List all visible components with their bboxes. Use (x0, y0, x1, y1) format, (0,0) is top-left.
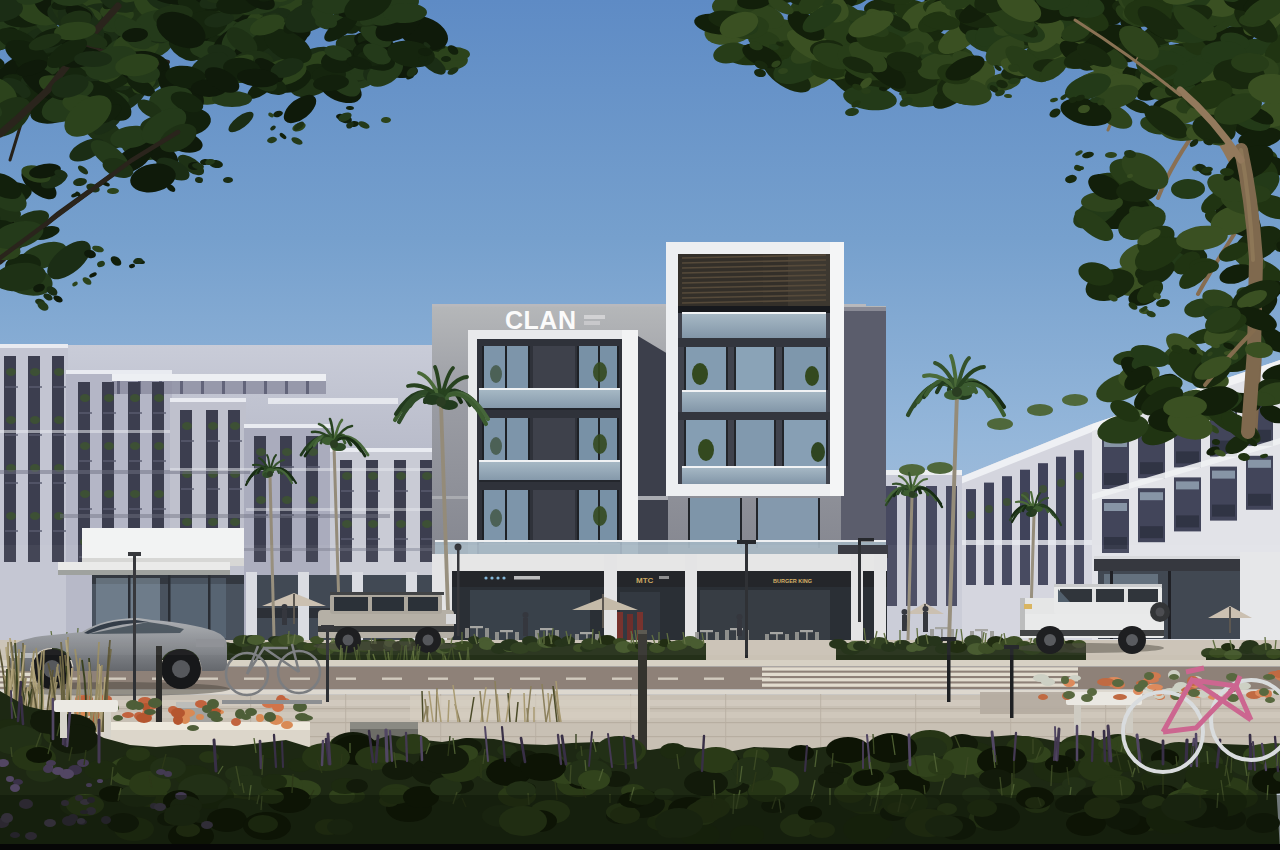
svg-text:CLAN: CLAN (505, 306, 576, 334)
